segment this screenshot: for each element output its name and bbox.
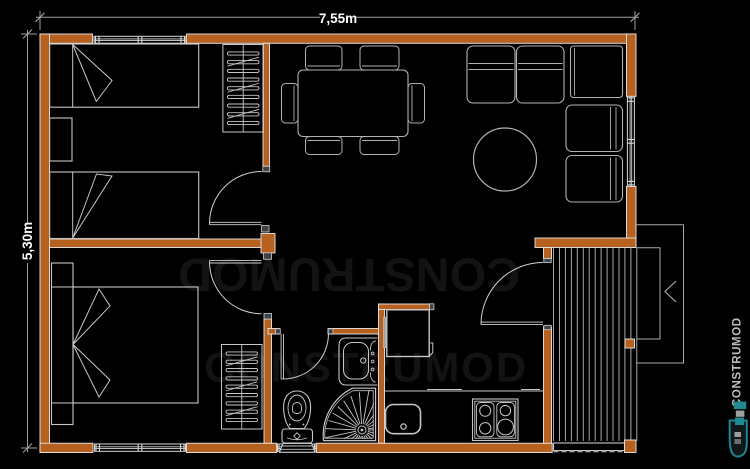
svg-text:5,30m: 5,30m — [20, 222, 35, 260]
svg-text:7,55m: 7,55m — [319, 11, 357, 26]
svg-text:CONSTRUMOD: CONSTRUMOD — [732, 317, 744, 407]
svg-text:CONSTRUMOD: CONSTRUMOD — [178, 249, 520, 302]
